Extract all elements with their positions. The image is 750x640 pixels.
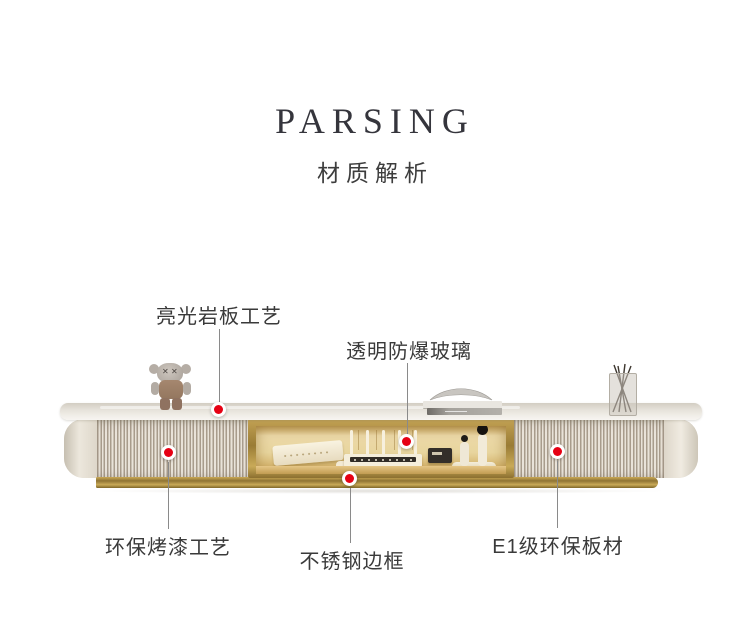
right-fluted-drawer [514, 419, 664, 478]
cabinet-left-endcap [64, 419, 98, 478]
leader-line [407, 363, 408, 434]
router-antenna [366, 430, 369, 455]
callout-label-steel: 不锈钢边框 [300, 545, 405, 574]
marker-dot [211, 402, 226, 417]
marker-dot [550, 444, 565, 459]
page-title: PARSING [0, 100, 750, 142]
microphone-right [478, 434, 487, 466]
product-detail-page: PARSING 材质解析 [0, 0, 750, 640]
set-top-box [272, 440, 343, 466]
callout-label-board: E1级环保板材 [492, 530, 623, 559]
cabinet-right-endcap [664, 419, 698, 478]
figure-x-eye: ✕ [162, 368, 169, 376]
figure-leg [172, 398, 182, 410]
router-antenna [414, 430, 417, 455]
marker-dot [342, 471, 357, 486]
floor-shadow [90, 488, 670, 494]
figure-arm [183, 382, 191, 395]
leader-line [219, 329, 220, 402]
page-subtitle: 材质解析 [0, 154, 750, 188]
microphone-left [460, 442, 469, 466]
callout-label-glass: 透明防爆玻璃 [346, 335, 472, 364]
kaws-figure: ✕ ✕ [142, 363, 200, 411]
leader-line [557, 461, 558, 528]
gold-base-strip [96, 477, 658, 488]
leader-line [168, 462, 169, 529]
branch-vase [605, 362, 639, 415]
book-stack [427, 408, 502, 415]
figure-arm [151, 382, 159, 395]
camera-speaker [428, 448, 452, 463]
vase-glass [609, 373, 637, 416]
glass-shelf-floor [256, 466, 506, 474]
figure-torso [159, 380, 183, 399]
callout-label-paint: 环保烤漆工艺 [105, 531, 231, 560]
router-antenna [382, 430, 385, 455]
leader-line [350, 488, 351, 543]
router-led-strip [350, 457, 416, 462]
glass-compartment [256, 426, 506, 474]
figure-x-eye: ✕ [171, 368, 178, 376]
marker-dot [399, 434, 414, 449]
figure-leg [160, 398, 170, 410]
router-antenna [350, 430, 353, 455]
marker-dot [161, 445, 176, 460]
callout-label-slate: 亮光岩板工艺 [156, 300, 282, 329]
